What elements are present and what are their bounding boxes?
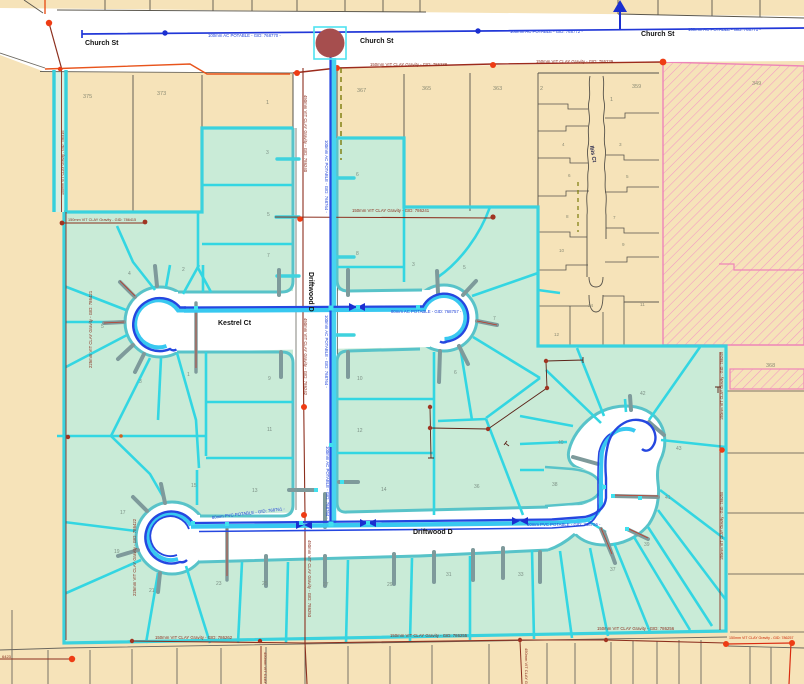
- svg-text:3: 3: [412, 262, 415, 268]
- svg-text:80mm AC POTABLE - GID: 768757: 80mm AC POTABLE - GID: 768757 -: [391, 309, 462, 314]
- svg-text:29: 29: [387, 582, 393, 588]
- svg-text:450mm VIT CLAY Gravity - GID:: 450mm VIT CLAY Gravity - GID: 786259: [524, 648, 529, 684]
- svg-text:40: 40: [558, 440, 564, 446]
- svg-text:39: 39: [644, 542, 650, 548]
- svg-text:14: 14: [588, 303, 594, 308]
- svg-text:Church St: Church St: [360, 38, 394, 45]
- svg-text:359: 359: [632, 84, 641, 90]
- svg-text:5: 5: [267, 212, 270, 218]
- svg-text:7: 7: [493, 316, 496, 322]
- svg-text:9: 9: [622, 242, 625, 247]
- svg-text:6423: 6423: [2, 654, 12, 659]
- svg-text:Church St: Church St: [641, 31, 675, 38]
- svg-text:37: 37: [610, 567, 616, 573]
- svg-text:5: 5: [101, 324, 104, 330]
- svg-text:150mm VIT CLAY Gravity - GID:: 150mm VIT CLAY Gravity - GID: 786415: [68, 218, 136, 222]
- svg-text:8: 8: [356, 251, 359, 257]
- svg-text:42: 42: [640, 391, 646, 397]
- svg-text:7: 7: [613, 215, 616, 220]
- svg-text:6: 6: [454, 370, 457, 376]
- svg-text:375: 375: [83, 94, 92, 100]
- svg-text:150mm VIT CLAY Gravity - GID:: 150mm VIT CLAY Gravity - GID: 786416: [61, 130, 65, 195]
- svg-text:225mm VIT CLAY Gravity - GID:: 225mm VIT CLAY Gravity - GID: 786422: [132, 518, 137, 596]
- svg-text:33: 33: [518, 572, 524, 578]
- svg-text:3: 3: [266, 150, 269, 156]
- svg-text:5: 5: [626, 174, 629, 179]
- svg-text:36: 36: [474, 484, 480, 490]
- svg-text:150mm VIT CLAY Gravity - GID:: 150mm VIT CLAY Gravity - GID: 786256: [597, 626, 675, 631]
- svg-text:25: 25: [262, 581, 268, 587]
- svg-text:27: 27: [323, 582, 329, 588]
- svg-text:100mm AC POTABLE - GID: 768764: 100mm AC POTABLE - GID: 768764 -: [325, 446, 330, 519]
- svg-text:225mm VIT CLAY Gravity - GID:: 225mm VIT CLAY Gravity - GID: 786421: [88, 290, 93, 368]
- svg-text:80mm PVC POTABLE - GID: 768756: 80mm PVC POTABLE - GID: 768756 -: [527, 522, 601, 527]
- svg-text:150mm VIT CLAY Gravity - GID:: 150mm VIT CLAY Gravity - GID: 786257: [729, 636, 794, 640]
- svg-text:100mm AC POTABLE - GID: 768770: 100mm AC POTABLE - GID: 768770 -: [208, 33, 281, 38]
- svg-text:7: 7: [267, 253, 270, 259]
- svg-text:31: 31: [446, 572, 452, 578]
- svg-text:450mm VIT CLAY Gravity - GID:: 450mm VIT CLAY Gravity - GID: 786253: [307, 540, 312, 618]
- svg-text:41: 41: [665, 495, 671, 501]
- svg-text:363: 363: [493, 86, 502, 92]
- svg-text:3: 3: [619, 142, 622, 147]
- svg-text:19: 19: [114, 549, 120, 555]
- svg-text:11: 11: [640, 302, 645, 307]
- svg-text:450mm VIT CLAY Gravity - GID:: 450mm VIT CLAY Gravity - GID: 786254: [263, 652, 268, 684]
- svg-text:43: 43: [676, 446, 682, 452]
- svg-text:373: 373: [157, 91, 166, 97]
- svg-text:11: 11: [267, 427, 272, 433]
- svg-text:100mm AC POTABLE - GID: 768772: 100mm AC POTABLE - GID: 768772 -: [510, 29, 583, 34]
- svg-text:150mm AC POTABLE - GID: 768771: 150mm AC POTABLE - GID: 768771 -: [688, 27, 761, 32]
- svg-text:150mm VIT CLAY Gravity - GID:: 150mm VIT CLAY Gravity - GID: 786239: [536, 59, 614, 64]
- svg-text:12: 12: [357, 428, 363, 434]
- svg-text:5: 5: [463, 265, 466, 271]
- svg-text:14: 14: [381, 487, 387, 493]
- svg-text:150mm VIT CLAY Gravity - GID:: 150mm VIT CLAY Gravity - GID: 786238: [370, 62, 448, 67]
- svg-text:38: 38: [552, 482, 558, 488]
- svg-text:368: 368: [766, 363, 775, 369]
- svg-text:2: 2: [540, 86, 543, 92]
- svg-text:349: 349: [752, 81, 761, 87]
- svg-text:2: 2: [182, 267, 185, 273]
- svg-text:17: 17: [120, 510, 126, 516]
- svg-text:450mm VIT CLAY Gravity - GID:: 450mm VIT CLAY Gravity - GID: 786242: [303, 318, 308, 396]
- svg-text:13: 13: [252, 488, 258, 494]
- svg-text:10: 10: [357, 376, 363, 382]
- svg-text:150mm VIT CLAY Gravity - GID:: 150mm VIT CLAY Gravity - GID: 786250: [720, 492, 724, 560]
- svg-text:100mm AC POTABLE - GID: 768764: 100mm AC POTABLE - GID: 768764 -: [324, 140, 329, 213]
- svg-text:Driftwood D: Driftwood D: [413, 529, 453, 536]
- svg-text:365: 365: [422, 86, 431, 92]
- svg-text:1: 1: [266, 100, 269, 106]
- svg-text:150mm VIT CLAY Gravity - GID:: 150mm VIT CLAY Gravity - GID: 786249: [720, 352, 724, 420]
- svg-text:Kestrel Ct: Kestrel Ct: [218, 320, 252, 327]
- svg-text:23: 23: [216, 581, 222, 587]
- svg-text:12: 12: [554, 332, 560, 337]
- svg-text:1: 1: [187, 372, 190, 378]
- svg-text:4: 4: [128, 271, 131, 277]
- svg-text:150mm VIT CLAY Gravity - GID:: 150mm VIT CLAY Gravity - GID: 786262: [155, 635, 233, 640]
- svg-text:6: 6: [568, 173, 571, 178]
- svg-text:450mm VIT CLAY Gravity - GID:: 450mm VIT CLAY Gravity - GID: 786240: [303, 95, 308, 173]
- svg-text:8: 8: [566, 214, 569, 219]
- svg-text:6: 6: [356, 172, 359, 178]
- svg-text:4: 4: [562, 142, 565, 147]
- svg-text:15: 15: [191, 483, 197, 489]
- svg-text:10: 10: [559, 248, 565, 253]
- svg-text:21: 21: [149, 588, 155, 594]
- svg-text:9: 9: [268, 376, 271, 382]
- svg-text:3: 3: [139, 379, 142, 385]
- svg-text:1: 1: [610, 97, 613, 103]
- svg-text:100mm AC POTABLE - GID: 768764: 100mm AC POTABLE - GID: 768764 -: [324, 315, 329, 388]
- svg-text:150mm VIT CLAY Gravity - GID:: 150mm VIT CLAY Gravity - GID: 786255: [390, 633, 468, 638]
- svg-text:Driftwood D: Driftwood D: [307, 272, 314, 312]
- svg-text:150mm VIT CLAY Gravity - GID:: 150mm VIT CLAY Gravity - GID: 786241: [352, 208, 430, 213]
- svg-text:Church St: Church St: [85, 40, 119, 47]
- svg-text:367: 367: [357, 88, 366, 94]
